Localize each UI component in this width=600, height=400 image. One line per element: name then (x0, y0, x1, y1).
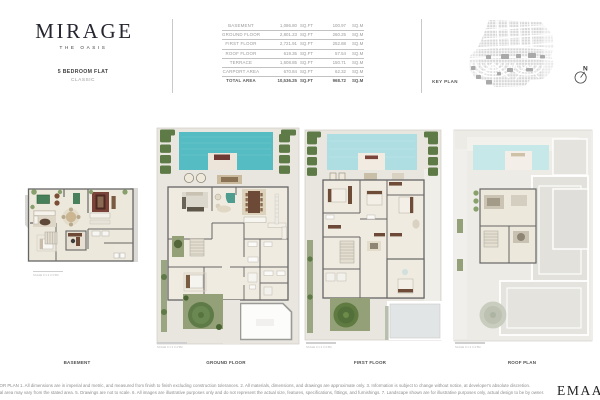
svg-text:N: N (583, 66, 588, 73)
